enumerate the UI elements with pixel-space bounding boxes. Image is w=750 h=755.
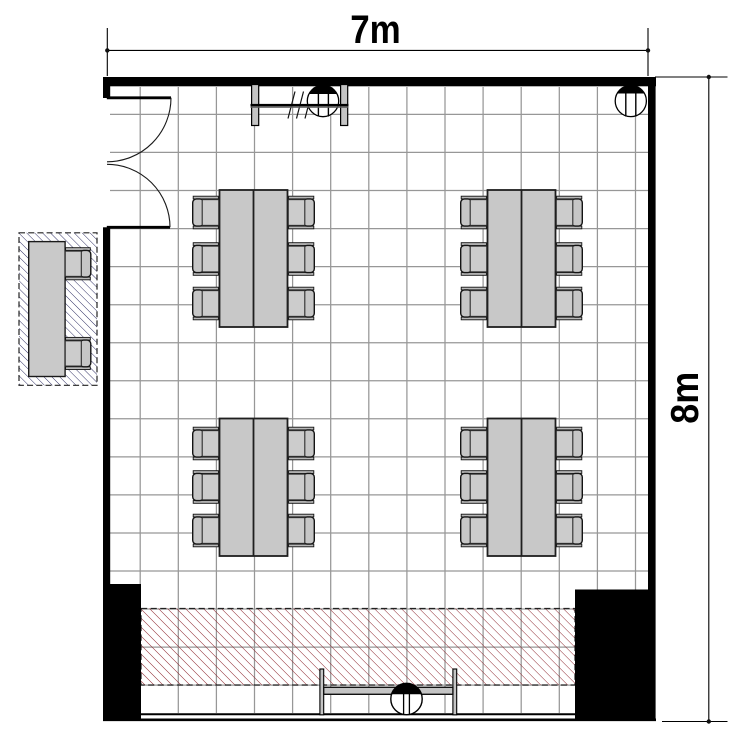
svg-text:8m: 8m bbox=[664, 372, 707, 424]
svg-text:7m: 7m bbox=[350, 8, 401, 52]
